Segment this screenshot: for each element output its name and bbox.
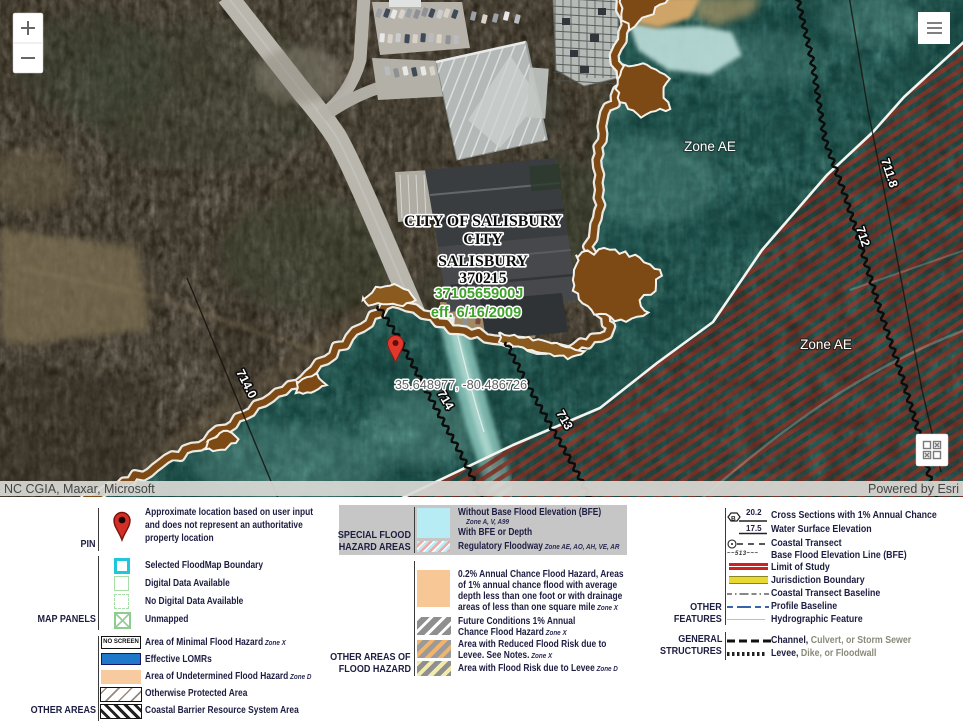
svg-text:17.5: 17.5 [746, 524, 762, 533]
svg-text:Zone AE: Zone AE [800, 337, 852, 352]
svg-text:eff. 6/16/2009: eff. 6/16/2009 [431, 305, 521, 321]
svg-text:CITY: CITY [463, 231, 503, 248]
svg-text:370215: 370215 [459, 270, 506, 287]
svg-text:NC CGIA, Maxar, Microsoft: NC CGIA, Maxar, Microsoft [4, 482, 155, 496]
svg-text:Zone AE: Zone AE [684, 139, 736, 154]
svg-text:Powered by Esri: Powered by Esri [868, 482, 959, 496]
svg-text:3710565900J: 3710565900J [435, 286, 524, 302]
svg-text:CITY OF SALISBURY: CITY OF SALISBURY [404, 213, 563, 230]
svg-text:SALISBURY: SALISBURY [438, 253, 528, 270]
svg-text:35.648977, -80.486726: 35.648977, -80.486726 [395, 377, 527, 392]
svg-text:20.2: 20.2 [746, 508, 762, 517]
